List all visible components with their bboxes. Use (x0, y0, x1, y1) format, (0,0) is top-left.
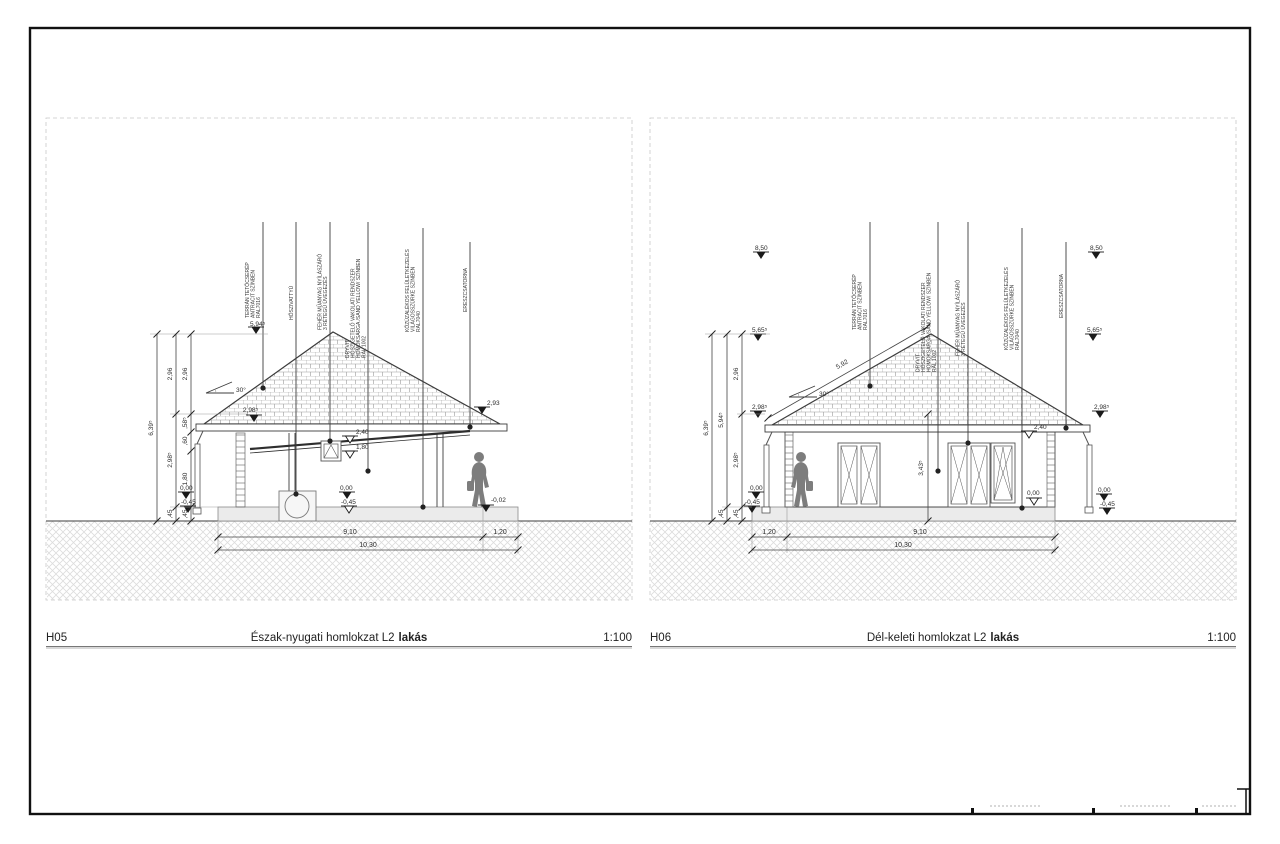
dimension-chains: 6,39⁵ 5,94⁵ ,45 2,96 2,98⁵ ,45 (703, 331, 770, 525)
person-figure (467, 452, 489, 507)
dim-label: 10,30 (894, 542, 912, 549)
dim-label: 2,96 (733, 367, 740, 380)
level-label: 2,40 (356, 429, 369, 436)
level-label: 2,40 (1034, 424, 1047, 431)
double-door-1 (838, 443, 880, 507)
level-label: 2,98⁵ (1094, 404, 1110, 411)
annotations: TERRÁN TETŐCSERÉP ANTRACIT SZÍNBEN RAL70… (244, 249, 469, 358)
level-label: 1,80 (356, 444, 369, 451)
base-slab (218, 507, 518, 521)
level-label: -0,45 (341, 499, 356, 506)
slope-indicator: 30° (789, 386, 829, 398)
svg-text:,45: ,45 (182, 509, 189, 518)
drawing-scale: 1:100 (542, 632, 632, 644)
dim-label: 5,92 (835, 358, 850, 371)
level-label: 2,93 (487, 400, 500, 407)
level-label: 0,00 (1027, 490, 1040, 497)
slope-indicator: 30° (206, 382, 246, 394)
svg-text:,60: ,60 (182, 436, 189, 445)
ground-hatch (47, 521, 631, 600)
level-label: 5,65⁵ (752, 327, 768, 334)
drawing-code: H06 (650, 632, 740, 644)
level-label: 2,98⁵ (752, 404, 768, 411)
level-label: -0,02 (491, 497, 506, 504)
porch-structure (236, 431, 470, 507)
svg-text:3 RÉTEGŰ ÜVEGEZÉS: 3 RÉTEGŰ ÜVEGEZÉS (322, 276, 329, 330)
small-window (321, 441, 341, 461)
title-block-h06: H06 Dél-keleti homlokzat L2lakás 1:100 (650, 624, 1236, 647)
level-label: 0,00 (340, 485, 353, 492)
fascia (196, 424, 507, 431)
title-block-h05: H05 Észak-nyugati homlokzat L2lakás 1:10… (46, 624, 632, 647)
svg-text:RAL 1002: RAL 1002 (932, 350, 938, 372)
annotations: TERRÁN TETŐCSERÉP ANTRACIT SZÍNBEN RAL70… (851, 267, 1065, 372)
dim-label: 5,94⁵ (718, 412, 725, 428)
svg-text:1,80: 1,80 (182, 472, 189, 485)
downspout (1083, 432, 1093, 513)
slope-label: 30° (236, 386, 246, 394)
double-door-2 (948, 443, 990, 507)
svg-text:,45: ,45 (167, 509, 174, 518)
sheet-frame-marks (971, 789, 1250, 814)
drawing-scale: 1:100 (1146, 632, 1236, 644)
svg-text:RAL7040: RAL7040 (416, 311, 422, 332)
annotation-label: ERESZCSATORNA (1059, 273, 1065, 318)
downspout (762, 432, 772, 513)
svg-text:,58⁵: ,58⁵ (182, 417, 189, 429)
level-label: -0,45 (181, 499, 196, 506)
dim-label: 6,39⁵ (148, 420, 155, 436)
drawing-title: Észak-nyugati homlokzat L2lakás (136, 632, 542, 644)
dim-label: 6,39⁵ (703, 420, 710, 436)
annotation-label: ERESZCSATORNA (463, 267, 469, 312)
dim-label: 1,20 (762, 529, 776, 536)
level-label: -0,45 (745, 499, 760, 506)
dim-label: 10,30 (359, 542, 377, 549)
elevation-h05: TERRÁN TETŐCSERÉP ANTRACIT SZÍNBEN RAL70… (46, 118, 632, 600)
level-label: 0,00 (750, 485, 763, 492)
elevation-h06: TERRÁN TETŐCSERÉP ANTRACIT SZÍNBEN RAL70… (650, 118, 1236, 600)
svg-text:RAL 1002: RAL 1002 (362, 336, 368, 358)
level-label: -0,45 (1100, 501, 1115, 508)
svg-text:2,98⁵: 2,98⁵ (167, 452, 174, 468)
dim-label: 2,96 (167, 367, 174, 380)
corner-quoin (785, 432, 793, 507)
annotation-label: HŐSZIVATTYÚ (288, 285, 295, 320)
ground-hatch (651, 521, 1235, 600)
level-label: 8,50 (1090, 245, 1103, 252)
dim-label: 9,10 (913, 529, 927, 536)
svg-text:RAL7016: RAL7016 (863, 309, 869, 330)
slope-label: 30° (819, 390, 829, 398)
drawing-code: H05 (46, 632, 136, 644)
dim-label: 3,43⁵ (918, 460, 925, 476)
level-label: 8,50 (755, 245, 768, 252)
dim-label: 1,20 (493, 529, 507, 536)
svg-text:,45: ,45 (733, 509, 740, 518)
level-label: 0,00 (1098, 487, 1111, 494)
dim-label: 9,10 (343, 529, 357, 536)
level-label: 5,65⁵ (1087, 327, 1103, 334)
corner-quoin (1047, 432, 1055, 507)
corner-quoin (236, 433, 245, 507)
level-label: 2,98⁵ (243, 407, 259, 414)
dim-label: 2,96 (182, 367, 189, 380)
tilt-turn-window (991, 443, 1015, 503)
base-slab (752, 507, 1055, 521)
svg-text:RAL7040: RAL7040 (1015, 329, 1021, 350)
svg-text:3 RÉTEGŰ ÜVEGEZÉS: 3 RÉTEGŰ ÜVEGEZÉS (960, 302, 967, 356)
svg-text:2,98⁵: 2,98⁵ (733, 452, 740, 468)
drawing-title: Dél-keleti homlokzat L2lakás (740, 632, 1146, 644)
svg-text:,45: ,45 (718, 509, 725, 518)
svg-text:RAL7016: RAL7016 (256, 297, 262, 318)
drawing-sheet: TERRÁN TETŐCSERÉP ANTRACIT SZÍNBEN RAL70… (0, 0, 1280, 844)
